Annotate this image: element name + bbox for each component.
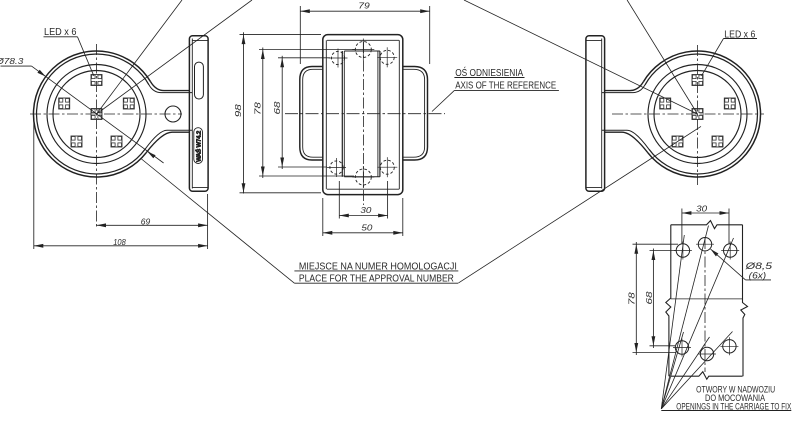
svg-text:30: 30 (360, 205, 371, 215)
svg-text:AXIS OF THE REFERENCE: AXIS OF THE REFERENCE (455, 81, 556, 92)
svg-text:69: 69 (141, 216, 151, 226)
svg-text:68: 68 (644, 291, 654, 304)
svg-text:Ø8,5: Ø8,5 (744, 261, 772, 271)
svg-text:98: 98 (233, 104, 243, 117)
svg-text:108: 108 (113, 237, 126, 247)
svg-text:68: 68 (272, 101, 282, 114)
svg-text:79: 79 (358, 1, 370, 11)
svg-text:78: 78 (627, 292, 637, 305)
svg-text:30: 30 (696, 203, 707, 213)
svg-text:(6x): (6x) (749, 271, 767, 281)
svg-text:78: 78 (253, 102, 263, 115)
svg-text:WAŚ W74.2: WAŚ W74.2 (194, 131, 202, 162)
svg-text:Ø78.3: Ø78.3 (0, 56, 24, 66)
svg-text:50: 50 (361, 222, 372, 232)
